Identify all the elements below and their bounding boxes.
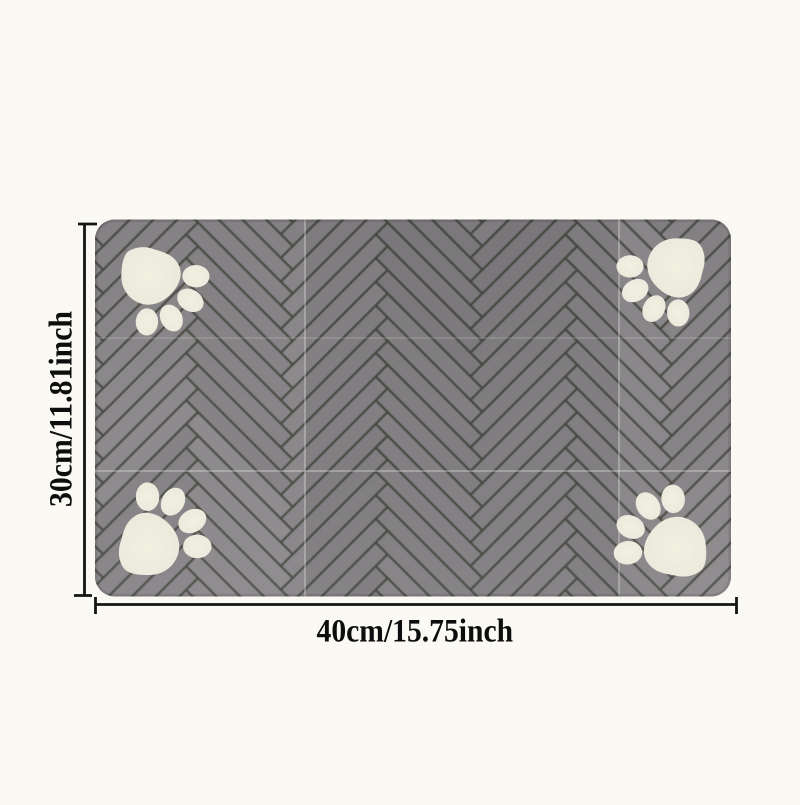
svg-text:40cm/15.75inch: 40cm/15.75inch xyxy=(317,614,514,650)
svg-text:30cm/11.81inch: 30cm/11.81inch xyxy=(44,311,80,507)
